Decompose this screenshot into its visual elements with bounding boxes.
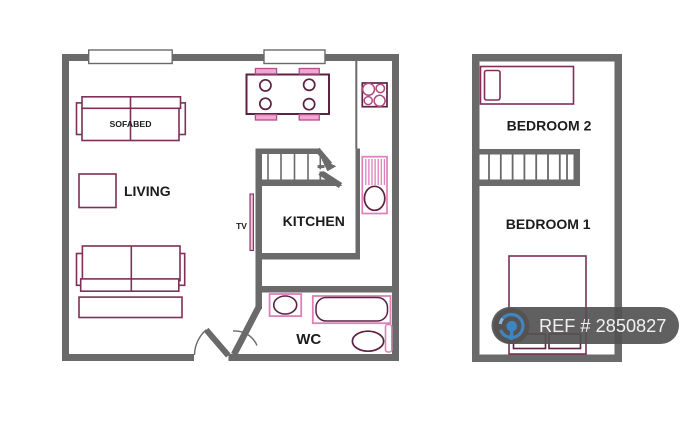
svg-text:REF # 2850827: REF # 2850827 [539, 316, 666, 336]
svg-text:LIVING: LIVING [124, 183, 171, 199]
svg-text:BEDROOM 2: BEDROOM 2 [507, 118, 592, 134]
svg-text:BEDROOM 1: BEDROOM 1 [506, 216, 591, 232]
svg-text:TV: TV [236, 221, 247, 231]
svg-text:SOFABED: SOFABED [110, 119, 152, 129]
svg-text:WC: WC [296, 331, 321, 348]
svg-text:KITCHEN: KITCHEN [283, 213, 345, 229]
